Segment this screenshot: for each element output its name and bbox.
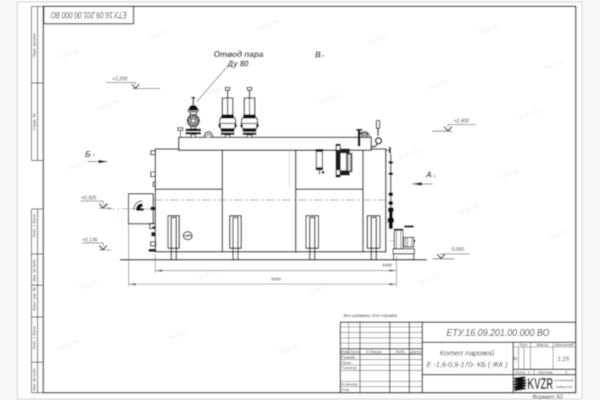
- svg-text:Перв. примен.: Перв. примен.: [32, 32, 36, 57]
- svg-text:Утв.: Утв.: [341, 387, 350, 392]
- svg-text:1: 1: [528, 370, 530, 375]
- svg-text:Инв. № дубл.: Инв. № дубл.: [32, 258, 36, 281]
- svg-text:Подп. и дата: Подп. и дата: [32, 214, 36, 238]
- svg-text:Лит.: Лит.: [518, 342, 528, 347]
- svg-text:Масштаб: Масштаб: [555, 342, 574, 347]
- svg-text:ЗАВОД РЭП: ЗАВОД РЭП: [556, 385, 574, 389]
- svg-text:Инв. № подл.: Инв. № подл.: [32, 367, 36, 391]
- svg-text:Е -1,6-0,9-170- КБ ( ЖК ): Е -1,6-0,9-170- КБ ( ЖК ): [427, 360, 509, 369]
- svg-text:Ду 80: Ду 80: [227, 60, 250, 69]
- svg-text:А: А: [425, 171, 432, 180]
- svg-text:Котел паровой: Котел паровой: [440, 349, 495, 358]
- svg-text:Изм Лист: Изм Лист: [341, 349, 360, 354]
- svg-text:KVZR: KVZR: [527, 376, 553, 393]
- svg-text:Справ. №: Справ. №: [32, 113, 36, 130]
- svg-text:ЕТУ.16.09.201.00.000 ВО: ЕТУ.16.09.201.00.000 ВО: [50, 10, 126, 20]
- svg-text:КОТЕЛЬНЫЙ: КОТЕЛЬНЫЙ: [555, 378, 575, 382]
- svg-text:+3,200: +3,200: [112, 77, 128, 83]
- svg-text:ЕТУ.16.09.201.00.000 ВО: ЕТУ.16.09.201.00.000 ВО: [447, 328, 550, 339]
- svg-text:Дата: Дата: [410, 349, 422, 354]
- svg-text:5000: 5000: [271, 276, 282, 281]
- svg-text:Пров.: Пров.: [341, 360, 352, 365]
- svg-text:+0,136: +0,136: [82, 238, 98, 244]
- svg-text:Б: Б: [85, 150, 91, 159]
- svg-text:1:25: 1:25: [558, 357, 570, 363]
- svg-text:Формат А3: Формат А3: [532, 394, 563, 400]
- svg-text:Все размеры для справок: Все размеры для справок: [344, 313, 399, 318]
- svg-text:Листов: Листов: [537, 370, 553, 375]
- svg-text:0,000: 0,000: [452, 247, 465, 253]
- svg-text:Т.контр.: Т.контр.: [341, 365, 357, 370]
- svg-text:N докум.: N докум.: [366, 349, 382, 354]
- svg-text:+2,400: +2,400: [454, 118, 470, 124]
- svg-text:Лист: Лист: [514, 370, 526, 375]
- svg-text:Взам. инв. №: Взам. инв. №: [32, 287, 36, 310]
- svg-text:Н.контр.: Н.контр.: [341, 382, 358, 387]
- svg-text:В: В: [315, 50, 321, 59]
- svg-text:Подп.: Подп.: [395, 349, 406, 354]
- svg-text:и: и: [514, 355, 518, 362]
- svg-text:Масса: Масса: [537, 342, 550, 347]
- svg-text:Отвод пара: Отвод пара: [214, 50, 264, 59]
- svg-text:Разраб.: Разраб.: [341, 354, 355, 359]
- svg-text:Подп. и дата: Подп. и дата: [32, 326, 36, 350]
- svg-text:+0,926: +0,926: [81, 196, 97, 202]
- svg-text:4480: 4480: [382, 263, 393, 268]
